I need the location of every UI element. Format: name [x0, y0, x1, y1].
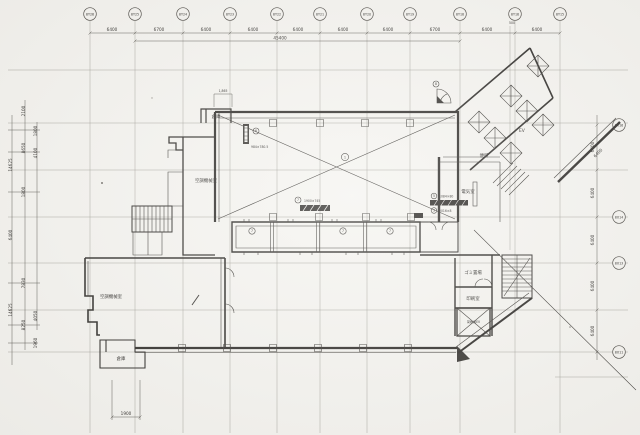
dimension-label: 4100 — [33, 147, 38, 158]
tag-label: 1 — [344, 155, 346, 159]
equipment-dim-label: 1084×80 — [439, 195, 453, 199]
floor-plan-drawing: 6400 6700 6400 6400 6400 6400 6400 6700 … — [0, 0, 640, 435]
dimension-label: 4050 — [33, 310, 38, 321]
dimension-label: 6400 — [293, 27, 304, 32]
hall-number-tag: 1 — [341, 153, 348, 160]
grid-bubble: 8Y18 — [454, 8, 467, 21]
right-grid-bubbles: 8X16 8X14 8X13 8X11 — [613, 119, 626, 359]
room-label-ev: EV — [519, 128, 525, 134]
grid-bubble-label: 8Y22 — [273, 12, 281, 16]
grid-bubble: 8Y24 — [177, 8, 190, 21]
equipment-tag-6: 6 984×780.5 — [243, 124, 268, 149]
ac-room-lower: 空調機械室 — [85, 258, 234, 348]
dimension-label: 6400 — [8, 229, 13, 240]
grid-bubble: 8Y22 — [271, 8, 284, 21]
dimension-label: 6400 — [107, 27, 118, 32]
grid-bubble: 8X14 — [613, 211, 626, 224]
grid-bubble-label: 8Y25 — [131, 12, 139, 16]
band-tag: 7 — [249, 228, 255, 234]
dimension-label: 6400 — [590, 325, 595, 336]
tag-label: 8 — [435, 82, 437, 86]
south-facade: 倉庫 — [100, 340, 470, 368]
dimension-label: 6400 — [590, 280, 595, 291]
door-fan-tag-8: 8 — [433, 81, 451, 103]
band-tag: 7 — [387, 228, 393, 234]
dimension-label: 6700 — [430, 27, 441, 32]
top-grid-bubbles: 8Y26 8Y25 8Y24 8Y23 8Y22 8Y21 8Y20 8Y19 … — [84, 8, 567, 21]
tag-label: 3 — [433, 209, 435, 213]
room-label-ac-lower: 空調機械室 — [100, 293, 123, 300]
tag-label: 7 — [342, 229, 344, 233]
dimension-label: 7830 — [21, 277, 26, 288]
room-label-electrical: 電気室 — [461, 188, 475, 195]
dimension-label: 1,865 — [219, 89, 228, 93]
room-label-storage-bottom: 倉庫 — [117, 355, 126, 362]
grid-bubble: 8Y25 — [129, 8, 142, 21]
grid-bubble-label: 8X13 — [615, 261, 624, 265]
grid-bubble: 8X13 — [613, 257, 626, 270]
room-label-storage-top: 倉庫 — [212, 113, 221, 120]
dimension-label: 8650 — [21, 142, 26, 153]
equipment-dim-label: 2016×8 — [439, 209, 451, 213]
room-label-garbage: ゴミ置場 — [464, 269, 482, 276]
grid-bubble-label: 8Y20 — [363, 12, 371, 16]
dimension-label: 500 — [509, 21, 515, 25]
equipment-dim-label: 1900×745 — [304, 199, 320, 203]
ac-room-upper: 空調機械室 — [132, 137, 218, 255]
grid-lines — [8, 20, 628, 433]
room-label-freight-ev: 荷物用EV — [467, 319, 481, 324]
grid-bubble-label: 8Y24 — [179, 12, 187, 16]
dimension-label: 1800 — [33, 125, 38, 136]
drawing-canvas: 6400 6700 6400 6400 6400 6400 6400 6700 … — [0, 0, 640, 435]
dimension-label: 14625 — [8, 303, 13, 317]
tag-label: 7 — [389, 229, 391, 233]
grid-bubble: 8Y19 — [404, 8, 417, 21]
grid-bubble-label: 8X14 — [615, 215, 624, 219]
dimension-label: 6400 — [482, 27, 493, 32]
room-label-wing: 便所 — [480, 152, 489, 159]
equipment-dim-label: 984×780.5 — [251, 145, 268, 149]
grid-bubble-label: 8Y23 — [226, 12, 234, 16]
dimension-label: 1900 — [121, 411, 132, 416]
tag-label: 6 — [255, 129, 257, 133]
tag-label: 5 — [433, 194, 435, 198]
dimension-label: 8250 — [21, 319, 26, 330]
right-dimension-chain: 6400 6400 6400 6400 6400 6400 — [590, 115, 604, 360]
grid-bubble-label: 8Y26 — [86, 12, 94, 16]
equipment-tag-7: 7 1900×745 — [295, 197, 330, 211]
grid-bubble: 8Y16 — [509, 8, 522, 21]
central-hall: 1 — [215, 112, 458, 222]
dimension-label: 1800 — [21, 186, 26, 197]
room-label-print: 印刷室 — [466, 295, 480, 302]
grid-bubble: 8Y26 — [84, 8, 97, 21]
dimension-total-label: 45400 — [273, 36, 287, 41]
grid-bubble-label: 8Y18 — [456, 12, 464, 16]
grid-bubble: 8Y15 — [554, 8, 567, 21]
top-dimension-chain: 6400 6700 6400 6400 6400 6400 6400 6700 … — [89, 21, 562, 43]
tag-label: 7 — [297, 198, 299, 202]
dimension-label: 6700 — [154, 27, 165, 32]
dimension-label: 1960 — [33, 337, 38, 348]
grid-bubble-label: 8Y19 — [406, 12, 414, 16]
grid-bubble-label: 8X11 — [615, 350, 624, 354]
machine-band: 7 7 7 — [232, 219, 458, 255]
grid-bubble-label: 8Y21 — [316, 12, 324, 16]
dimension-label: 6400 — [590, 187, 595, 198]
duct-equipment — [414, 213, 423, 218]
grid-bubble: 8Y23 — [224, 8, 237, 21]
dimension-label: 6400 — [201, 27, 212, 32]
dimension-label: 14625 — [8, 158, 13, 172]
grid-bubble: 8Y21 — [314, 8, 327, 21]
room-label-ac-upper: 空調機械室 — [195, 177, 218, 184]
dimension-label: 6400 — [532, 27, 543, 32]
dimension-label: 6400 — [248, 27, 259, 32]
band-tag: 7 — [340, 228, 346, 234]
dimension-label: 6400 — [338, 27, 349, 32]
dimension-label: 6400 — [383, 27, 394, 32]
dimension-label: 2100 — [21, 105, 26, 116]
grid-bubble-label: 8Y15 — [556, 12, 564, 16]
scan-marks — [101, 97, 571, 328]
bottom-dimension: 1900 — [111, 380, 142, 420]
grid-bubble: 8Y20 — [361, 8, 374, 21]
tag-label: 7 — [251, 229, 253, 233]
grid-bubble: 8X16 — [613, 119, 626, 132]
grid-bubble: 8X11 — [613, 346, 626, 359]
left-dimension-chains: 2100 8650 1800 7830 8250 14625 6400 1462… — [8, 100, 40, 365]
grid-bubble-label: 8Y16 — [511, 12, 519, 16]
dimension-label: 6400 — [590, 234, 595, 245]
